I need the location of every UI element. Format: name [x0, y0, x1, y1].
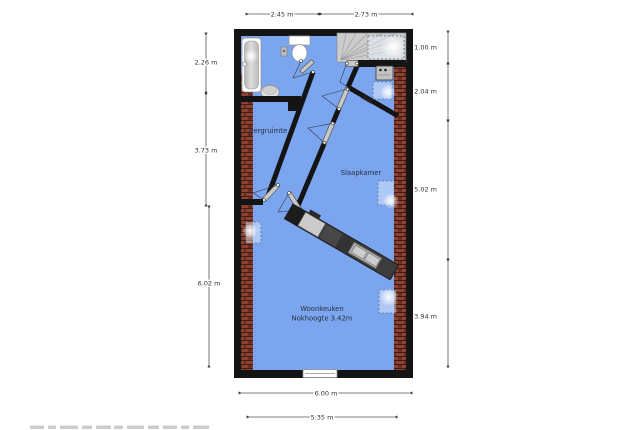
room-label-woonkeuken: Woonkeuken	[300, 305, 343, 313]
bathtub-icon	[242, 38, 261, 92]
dim-right-2: 2.04 m	[414, 87, 437, 95]
dim-left-3: 6.02 m	[198, 279, 221, 287]
boiler-icon	[376, 66, 393, 80]
dim-right-4: 3.94 m	[414, 312, 437, 320]
dim-right-1: 1.00 m	[414, 43, 437, 51]
brick-wall-left	[241, 73, 253, 370]
dim-bottom-1: 6.00 m	[315, 389, 338, 397]
dim-right-3: 5.02 m	[414, 185, 437, 193]
bathroom-wall	[241, 96, 291, 102]
room-sublabel-woonkeuken: Nokhoogte 3.42m	[292, 315, 353, 323]
washbasin-tap-icon	[281, 47, 287, 56]
plan-body: Bergruimte Slaapkamer Woonkeuken Nokhoog…	[234, 29, 413, 378]
dim-top-2: 2.73 m	[355, 10, 378, 18]
staircase	[337, 33, 406, 62]
room-label-bergruimte: Bergruimte	[249, 127, 287, 135]
window-icon	[303, 370, 337, 378]
floor-plan-page: Bergruimte Slaapkamer Woonkeuken Nokhoog…	[0, 0, 640, 430]
tub-faucet-icon	[242, 62, 246, 66]
dim-left-2: 3.73 m	[195, 146, 218, 154]
bergruimte-wall	[241, 199, 263, 205]
watermark-text-cutoff	[30, 426, 209, 430]
dim-top-1: 2.45 m	[271, 10, 294, 18]
room-label-slaapkamer: Slaapkamer	[341, 169, 382, 177]
dim-bottom-2: 5.35 m	[311, 413, 334, 421]
floor-plan-drawing: Bergruimte Slaapkamer Woonkeuken Nokhoog…	[0, 0, 640, 430]
dim-left-1: 2.26 m	[195, 58, 218, 66]
